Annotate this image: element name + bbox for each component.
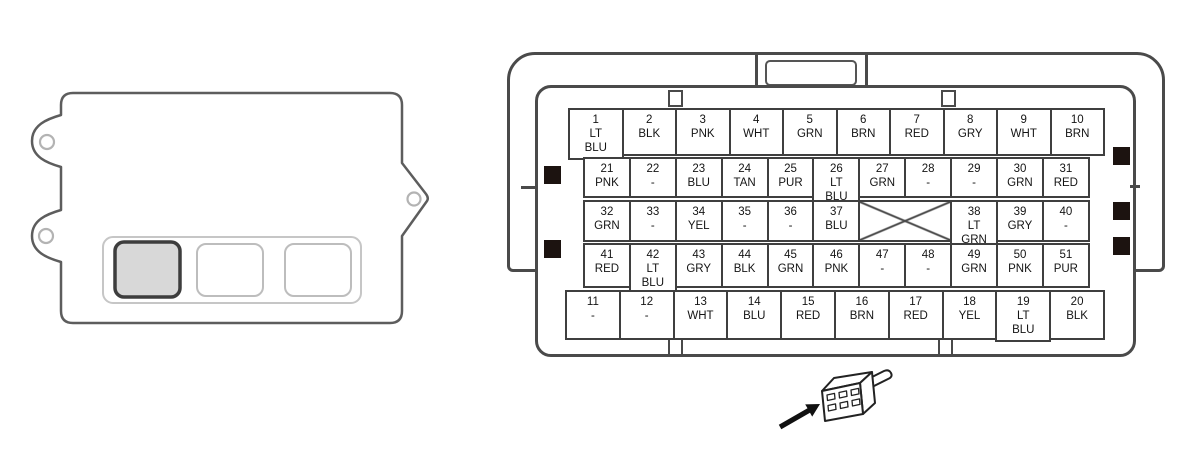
pin-cell-line: - <box>906 262 950 276</box>
pin-cell-line: 15 <box>782 295 834 309</box>
probe-arrow-icon <box>779 404 820 429</box>
pin-cell-line: 16 <box>836 295 888 309</box>
pin-cell-line: BRN <box>1052 127 1104 141</box>
pin-cell-line: RED <box>1044 176 1088 190</box>
housing-step-left <box>521 186 536 189</box>
pin-cell-48: 48- <box>904 243 952 288</box>
pin-cell-line: 21 <box>585 162 629 176</box>
pin-cell-11: 11- <box>565 290 621 340</box>
pin-cell-line: 22 <box>631 162 675 176</box>
module-body <box>32 93 428 323</box>
pin-cell-line: PNK <box>585 176 629 190</box>
pin-cell-line: RED <box>891 127 943 141</box>
housing-notch-line <box>755 54 758 87</box>
housing-latch-slot <box>765 60 857 86</box>
pin-row-bottom: 11-12-13WHT14BLU15RED16BRN17RED18YEL19LT… <box>565 290 1103 342</box>
pin-cell-line: 28 <box>906 162 950 176</box>
pin-cell-line: BLK <box>624 127 676 141</box>
pin-cell-line: - <box>860 262 904 276</box>
control-module <box>32 93 428 323</box>
pin-cell-line: GRN <box>860 176 904 190</box>
pin-cell-line: 19 <box>997 295 1049 309</box>
pin-cell-5: 5GRN <box>782 108 838 156</box>
pin-cell-line: RED <box>585 262 629 276</box>
pin-cell-line: BLU <box>997 323 1049 337</box>
pin-cell-28: 28- <box>904 157 952 198</box>
probe-connector-icon <box>779 370 892 429</box>
pin-cell-19: 19LTBLU <box>995 290 1051 342</box>
pin-cell-41: 41RED <box>583 243 631 288</box>
pin-cell-line: BLU <box>570 141 622 155</box>
lock-tab-icon <box>1113 202 1130 220</box>
guide-tab-icon <box>941 90 956 107</box>
pin-cell-line: 18 <box>944 295 996 309</box>
pin-cell-line: 8 <box>945 113 997 127</box>
pin-cell-line: - <box>631 219 675 233</box>
pin-cell-31: 31RED <box>1042 157 1090 198</box>
pin-cell-line: 32 <box>585 205 629 219</box>
pin-cell-42: 42LTBLU <box>629 243 677 295</box>
pin-cell-25: 25PUR <box>767 157 815 198</box>
pin-cell-21: 21PNK <box>583 157 631 198</box>
pin-cell-line: 33 <box>631 205 675 219</box>
connector-slot-2 <box>197 244 263 296</box>
pin-cell-13: 13WHT <box>673 290 729 340</box>
pin-cell-line: 26 <box>814 162 858 176</box>
housing-step-right <box>1130 185 1140 188</box>
pin-cell-46: 46PNK <box>812 243 860 288</box>
pin-cell-line: 4 <box>731 113 783 127</box>
pin-cell-line: 35 <box>723 205 767 219</box>
pin-cell-4: 4WHT <box>729 108 785 156</box>
pin-cell-line: WHT <box>675 309 727 323</box>
pin-cell-line: LT <box>997 309 1049 323</box>
pin-cell-line: 31 <box>1044 162 1088 176</box>
pin-cell-12: 12- <box>619 290 675 340</box>
pin-cell-line: 49 <box>952 248 996 262</box>
pin-cell-line: - <box>769 219 813 233</box>
pin-cell-line: 50 <box>998 248 1042 262</box>
pin-cell-line: GRY <box>998 219 1042 233</box>
pin-cell-8: 8GRY <box>943 108 999 156</box>
pin-cell-line: 48 <box>906 248 950 262</box>
pin-cell-18: 18YEL <box>942 290 998 340</box>
pin-cell-line: PNK <box>814 262 858 276</box>
pin-cell-line: 37 <box>814 205 858 219</box>
pin-cell-line: PNK <box>677 127 729 141</box>
pin-cell-line: 27 <box>860 162 904 176</box>
pin-cell-23: 23BLU <box>675 157 723 198</box>
pin-cell-3: 3PNK <box>675 108 731 156</box>
pin-cell-line: GRY <box>677 262 721 276</box>
pin-cell-line: - <box>1044 219 1088 233</box>
pin-cell-45: 45GRN <box>767 243 815 288</box>
pin-cell-14: 14BLU <box>726 290 782 340</box>
pin-cell-47: 47- <box>858 243 906 288</box>
pin-cell-line: 13 <box>675 295 727 309</box>
pin-cell-line: 30 <box>998 162 1042 176</box>
module-connector-strip <box>103 237 361 303</box>
pin-cell-line: 5 <box>784 113 836 127</box>
pin-cell-39: 39GRY <box>996 200 1044 242</box>
pin-row-top: 1LTBLU2BLK3PNK4WHT5GRN6BRN7RED8GRY9WHT10… <box>568 108 1103 160</box>
pin-cell-27: 27GRN <box>858 157 906 198</box>
pin-cell-line: 44 <box>723 248 767 262</box>
pin-cell-line: 39 <box>998 205 1042 219</box>
pin-cell-24: 24TAN <box>721 157 769 198</box>
pin-cell-line: RED <box>782 309 834 323</box>
pin-cell-44: 44BLK <box>721 243 769 288</box>
pin-cell-line: 34 <box>677 205 721 219</box>
pin-cell-line: TAN <box>723 176 767 190</box>
pin-cell-line: 43 <box>677 248 721 262</box>
probe-top-face <box>822 372 872 391</box>
pin-cell-line: BRN <box>836 309 888 323</box>
pin-cell-line: WHT <box>731 127 783 141</box>
pin-cell-line: BRN <box>838 127 890 141</box>
pin-cell-line: 17 <box>890 295 942 309</box>
pin-cell-line: 14 <box>728 295 780 309</box>
pin-cell-34: 34YEL <box>675 200 723 242</box>
pin-cell-line: 9 <box>998 113 1050 127</box>
pin-cell-40: 40- <box>1042 200 1090 242</box>
mounting-hole-icon <box>408 193 421 206</box>
pin-cell-line: 7 <box>891 113 943 127</box>
pin-cell-line: GRN <box>952 262 996 276</box>
pin-cell-line: 6 <box>838 113 890 127</box>
lock-tab-icon <box>1113 147 1130 165</box>
pin-cell-line: BLU <box>814 219 858 233</box>
pin-cell-line: BLU <box>728 309 780 323</box>
probe-front-face <box>822 383 863 421</box>
mounting-hole-icon <box>40 135 54 149</box>
pin-cell-line: - <box>906 176 950 190</box>
pin-cell-line: GRN <box>585 219 629 233</box>
pin-cell-line: 20 <box>1051 295 1103 309</box>
pin-cell-50: 50PNK <box>996 243 1044 288</box>
pin-cell-line: 2 <box>624 113 676 127</box>
pin-cell-line: 24 <box>723 162 767 176</box>
pin-row-fourth: 41RED42LTBLU43GRY44BLK45GRN46PNK47-48-49… <box>583 243 1088 295</box>
pin-cell-line: RED <box>890 309 942 323</box>
probe-wire <box>862 370 892 390</box>
pin-cell-7: 7RED <box>889 108 945 156</box>
pin-cell-9: 9WHT <box>996 108 1052 156</box>
pin-cell-20: 20BLK <box>1049 290 1105 340</box>
lock-tab-icon <box>544 240 561 258</box>
pin-cell-line: YEL <box>677 219 721 233</box>
blocked-cell <box>858 200 952 242</box>
pin-cell-line: 12 <box>621 295 673 309</box>
pin-cell-line: PUR <box>1044 262 1088 276</box>
guide-tab-icon <box>668 90 683 107</box>
pin-cell-line: 46 <box>814 248 858 262</box>
pin-cell-32: 32GRN <box>583 200 631 242</box>
pin-cell-line: 1 <box>570 113 622 127</box>
pin-cell-line: WHT <box>998 127 1050 141</box>
pin-cell-line: 40 <box>1044 205 1088 219</box>
pin-cell-line: 38 <box>952 205 996 219</box>
pin-cell-51: 51PUR <box>1042 243 1090 288</box>
pin-cell-10: 10BRN <box>1050 108 1106 156</box>
pin-cell-line: GRY <box>945 127 997 141</box>
pin-cell-49: 49GRN <box>950 243 998 288</box>
pin-cell-line: 42 <box>631 248 675 262</box>
pin-cell-line: 45 <box>769 248 813 262</box>
pin-cell-line: LT <box>631 262 675 276</box>
pin-cell-line: 41 <box>585 248 629 262</box>
pin-cell-line: 36 <box>769 205 813 219</box>
mounting-hole-icon <box>39 229 53 243</box>
pin-cell-line: - <box>567 309 619 323</box>
connector-pinout-diagram: 1LTBLU2BLK3PNK4WHT5GRN6BRN7RED8GRY9WHT10… <box>0 0 1200 449</box>
pin-cell-line: 51 <box>1044 248 1088 262</box>
pin-cell-15: 15RED <box>780 290 836 340</box>
pin-cell-16: 16BRN <box>834 290 890 340</box>
pin-cell-line: 47 <box>860 248 904 262</box>
pin-cell-line: GRN <box>769 262 813 276</box>
pin-cell-1: 1LTBLU <box>568 108 624 160</box>
pin-cell-line: 29 <box>952 162 996 176</box>
lock-tab-icon <box>544 166 561 184</box>
pin-cell-line: 11 <box>567 295 619 309</box>
pin-cell-2: 2BLK <box>622 108 678 156</box>
lock-tab-icon <box>1113 237 1130 255</box>
pin-cell-line: BLU <box>677 176 721 190</box>
pin-cell-line: - <box>631 176 675 190</box>
pin-cell-line: LT <box>952 219 996 233</box>
pin-cell-line: 25 <box>769 162 813 176</box>
pin-cell-line: - <box>952 176 996 190</box>
pin-cell-line: LT <box>814 176 858 190</box>
pin-cell-17: 17RED <box>888 290 944 340</box>
pin-cell-6: 6BRN <box>836 108 892 156</box>
pin-cell-36: 36- <box>767 200 815 242</box>
pin-cell-line: BLK <box>1051 309 1103 323</box>
pin-cell-line: 10 <box>1052 113 1104 127</box>
pin-cell-line: - <box>621 309 673 323</box>
pin-cell-33: 33- <box>629 200 677 242</box>
pin-cell-30: 30GRN <box>996 157 1044 198</box>
pin-cell-35: 35- <box>721 200 769 242</box>
pin-cell-line: BLK <box>723 262 767 276</box>
pin-cell-43: 43GRY <box>675 243 723 288</box>
pin-cell-line: YEL <box>944 309 996 323</box>
pin-cell-line: 3 <box>677 113 729 127</box>
pin-cell-line: PUR <box>769 176 813 190</box>
pin-cell-37: 37BLU <box>812 200 860 242</box>
connector-slot-1 <box>115 242 180 297</box>
pin-cell-line: - <box>723 219 767 233</box>
pin-cell-line: GRN <box>998 176 1042 190</box>
pin-cell-line: GRN <box>784 127 836 141</box>
probe-pin-holes <box>827 388 860 411</box>
pin-cell-line: PNK <box>998 262 1042 276</box>
probe-right-face <box>860 372 875 414</box>
connector-slot-3 <box>285 244 351 296</box>
pin-cell-line: BLU <box>631 276 675 290</box>
housing-notch-line <box>865 54 868 87</box>
pin-cell-line: 23 <box>677 162 721 176</box>
pin-cell-line: LT <box>570 127 622 141</box>
pin-cell-29: 29- <box>950 157 998 198</box>
pin-cell-22: 22- <box>629 157 677 198</box>
